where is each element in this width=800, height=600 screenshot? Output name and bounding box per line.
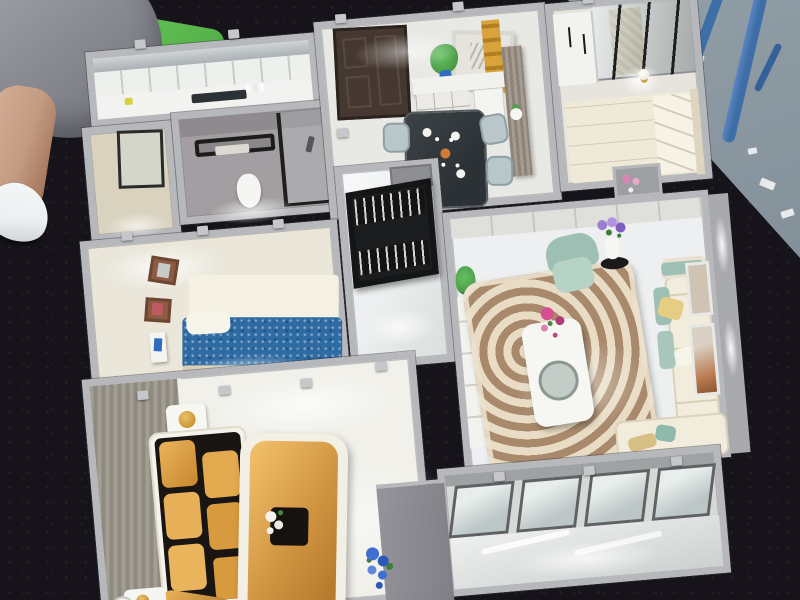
shelf-book	[154, 338, 163, 351]
wall-art-small	[685, 261, 714, 317]
led-clip	[273, 219, 285, 229]
balcony-glass-pane	[584, 469, 650, 527]
purple-flowers	[597, 220, 608, 231]
led-clip	[337, 128, 349, 138]
corner-niche	[612, 163, 663, 199]
bench-tray	[270, 507, 309, 546]
bathroom	[171, 99, 342, 225]
pillow-teal	[655, 424, 677, 443]
scene	[0, 0, 800, 600]
wall-frame-art	[157, 263, 171, 279]
entry-door-panel	[345, 75, 372, 109]
towel	[215, 144, 250, 156]
wall-frame-art	[151, 303, 163, 316]
led-clip	[671, 456, 683, 466]
wall-art-large	[688, 323, 720, 397]
dining-chair	[486, 156, 514, 186]
led-clip	[121, 231, 133, 241]
led-clip	[493, 472, 505, 482]
wardrobe-white-doors	[553, 11, 599, 86]
laundry-room	[82, 120, 182, 242]
plant-stand-vase	[604, 237, 620, 260]
led-clip	[228, 29, 240, 39]
light-glow	[713, 215, 731, 274]
balcony-glass-pane	[516, 475, 582, 533]
kitchen-bottles	[246, 84, 251, 92]
led-clip	[301, 378, 313, 388]
balcony-glass-pane	[448, 481, 514, 539]
dining-chair	[383, 122, 411, 152]
bed-pillow	[186, 311, 231, 335]
light-glow	[722, 319, 740, 378]
living-room	[443, 190, 731, 480]
niche-flowers	[622, 174, 632, 184]
apartment-model	[0, 0, 800, 600]
led-clip	[197, 225, 209, 235]
led-clip	[583, 466, 595, 476]
laundry-glass-door	[117, 129, 165, 189]
led-clip	[137, 390, 149, 400]
light-glow	[364, 306, 437, 348]
bedroom-master	[545, 0, 713, 192]
dining-chair	[478, 112, 510, 146]
led-clip	[335, 14, 347, 24]
exterior-wall	[376, 479, 454, 600]
gold-cushion	[159, 439, 199, 488]
hallway	[334, 158, 455, 370]
kitchen-decor	[124, 98, 133, 106]
led-clip	[452, 1, 464, 11]
balcony-glass-pane	[652, 463, 716, 521]
led-clip	[375, 361, 387, 371]
led-clip	[134, 39, 146, 49]
led-clip	[219, 385, 231, 395]
